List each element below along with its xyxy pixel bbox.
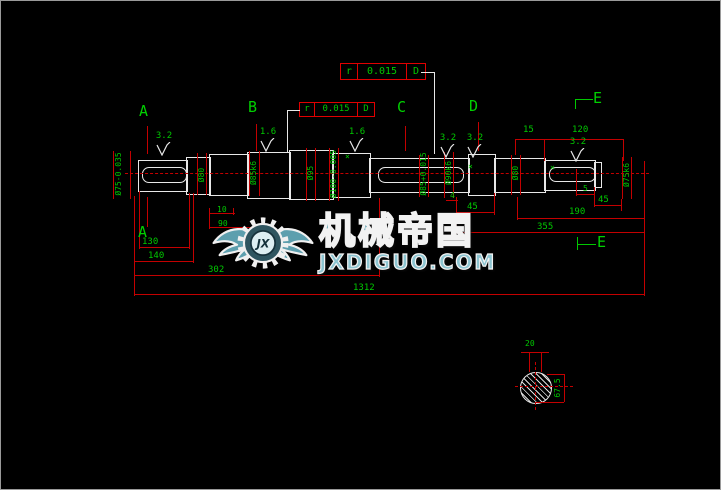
cad-drawing-canvas: r 0.015 D r 0.015 D A B C D E A E 3.2 1.… bbox=[0, 0, 721, 490]
leader-line bbox=[421, 72, 434, 73]
runout-tolerance-frame: r 0.015 D bbox=[299, 102, 375, 117]
dim-text: 190 bbox=[569, 207, 585, 217]
winged-gear-logo-icon: JX bbox=[211, 207, 315, 279]
tolerance-value: 0.015 bbox=[358, 64, 407, 79]
leader-line bbox=[287, 110, 300, 111]
shaft-cross-section bbox=[520, 372, 552, 404]
roughness-value: 3.2 bbox=[566, 138, 590, 147]
dim-line bbox=[521, 352, 549, 353]
dim-line bbox=[631, 157, 632, 199]
diameter-text: Ø85k6 bbox=[250, 161, 258, 185]
dim-line bbox=[259, 151, 260, 196]
dim-text: 45 bbox=[598, 195, 609, 205]
section-leader bbox=[577, 237, 578, 250]
dim-text: 4 bbox=[450, 191, 455, 201]
tolerance-symbol: r bbox=[300, 103, 315, 116]
roughness-icon bbox=[349, 138, 365, 152]
dim-line bbox=[134, 294, 644, 295]
keyway-slot bbox=[142, 167, 187, 183]
dim-text: 5 bbox=[583, 184, 588, 194]
ext-line bbox=[515, 139, 516, 155]
section-label-d: D bbox=[469, 99, 478, 114]
tolerance-datum: D bbox=[358, 103, 374, 116]
dim-line bbox=[594, 205, 621, 206]
ext-line bbox=[594, 187, 595, 207]
dim-text-total-length: 1312 bbox=[353, 283, 375, 293]
ext-line bbox=[541, 352, 542, 372]
diameter-text: Ø75-0.035 bbox=[115, 152, 123, 195]
dim-line bbox=[428, 155, 429, 197]
dim-line bbox=[576, 194, 594, 195]
leader-line bbox=[287, 110, 288, 152]
section-label-e-bottom: E bbox=[597, 235, 606, 250]
runout-tolerance-frame: r 0.015 D bbox=[340, 63, 426, 80]
dim-line bbox=[206, 153, 207, 195]
ext-line bbox=[623, 139, 624, 161]
section-leader bbox=[147, 126, 148, 154]
roughness-icon bbox=[570, 148, 586, 162]
roughness-value: 1.6 bbox=[256, 128, 280, 137]
ext-line bbox=[193, 193, 194, 263]
diameter-text: Ø90k6 bbox=[445, 161, 453, 185]
dim-line bbox=[315, 148, 316, 201]
dim-line bbox=[520, 155, 521, 195]
dim-line bbox=[338, 148, 339, 201]
diameter-text: Ø75k6 bbox=[623, 163, 631, 187]
dim-line bbox=[130, 151, 131, 199]
diameter-text: Ø100-0.005 bbox=[330, 150, 338, 198]
dim-line bbox=[134, 261, 193, 262]
ext-line bbox=[576, 169, 577, 196]
ext-line bbox=[544, 139, 545, 161]
watermark-title: 机械帝国 bbox=[319, 213, 496, 251]
dim-text: 130 bbox=[142, 237, 158, 247]
ext-line bbox=[529, 352, 530, 372]
diameter-text: Ø85+0.015 bbox=[420, 152, 428, 195]
roughness-mark: 3.2 bbox=[463, 134, 487, 162]
roughness-mark: 3.2 bbox=[152, 132, 176, 160]
ext-line bbox=[621, 199, 622, 211]
keyway-slot bbox=[549, 167, 596, 182]
ext-line bbox=[134, 196, 135, 296]
diameter-text: Ø95 bbox=[307, 166, 315, 180]
snap-marker: × bbox=[550, 164, 555, 172]
shaft-segment bbox=[209, 154, 249, 196]
dim-text: 140 bbox=[148, 251, 164, 261]
ext-line bbox=[535, 402, 564, 403]
section-leader bbox=[577, 244, 596, 245]
dim-text-keyway-width: 20 bbox=[525, 339, 535, 349]
roughness-icon bbox=[260, 138, 276, 152]
dim-line bbox=[139, 247, 189, 248]
section-label-a-top: A bbox=[139, 104, 148, 119]
dim-text-section-depth: 67.5 bbox=[554, 378, 562, 397]
section-label-c: C bbox=[397, 100, 406, 115]
roughness-icon bbox=[440, 144, 456, 158]
dim-line bbox=[564, 374, 565, 402]
section-leader bbox=[575, 99, 576, 109]
roughness-value: 3.2 bbox=[463, 134, 487, 143]
section-label-e-top: E bbox=[593, 91, 602, 106]
dim-text: 120 bbox=[572, 125, 588, 135]
roughness-value: 3.2 bbox=[436, 134, 460, 143]
section-leader bbox=[147, 197, 148, 227]
leader-line bbox=[434, 72, 435, 154]
roughness-mark: 3.2 bbox=[566, 138, 590, 166]
roughness-mark: 3.2 bbox=[436, 134, 460, 162]
section-leader bbox=[405, 126, 406, 151]
snap-marker: × bbox=[345, 153, 350, 161]
tolerance-symbol: r bbox=[341, 64, 358, 79]
roughness-icon bbox=[467, 144, 483, 158]
watermark: JX 机械帝国 JXDIGUO.COM bbox=[211, 203, 541, 283]
section-label-b: B bbox=[248, 100, 257, 115]
ext-line bbox=[189, 193, 190, 249]
ext-line bbox=[209, 208, 210, 229]
dim-text: 15 bbox=[523, 125, 534, 135]
diameter-text: Ø80 bbox=[198, 168, 206, 182]
roughness-value: 3.2 bbox=[152, 132, 176, 141]
watermark-domain: JXDIGUO.COM bbox=[319, 251, 496, 273]
diameter-text: Ø80 bbox=[512, 166, 520, 180]
roughness-icon bbox=[156, 142, 172, 156]
snap-marker: × bbox=[468, 163, 473, 171]
ext-line bbox=[547, 374, 564, 375]
roughness-value: 1.6 bbox=[345, 128, 369, 137]
roughness-mark: 1.6 bbox=[256, 128, 280, 156]
logo-badge-text: JX bbox=[255, 237, 271, 250]
section-leader bbox=[575, 99, 593, 100]
tolerance-value: 0.015 bbox=[315, 103, 358, 116]
ext-line bbox=[644, 161, 645, 296]
